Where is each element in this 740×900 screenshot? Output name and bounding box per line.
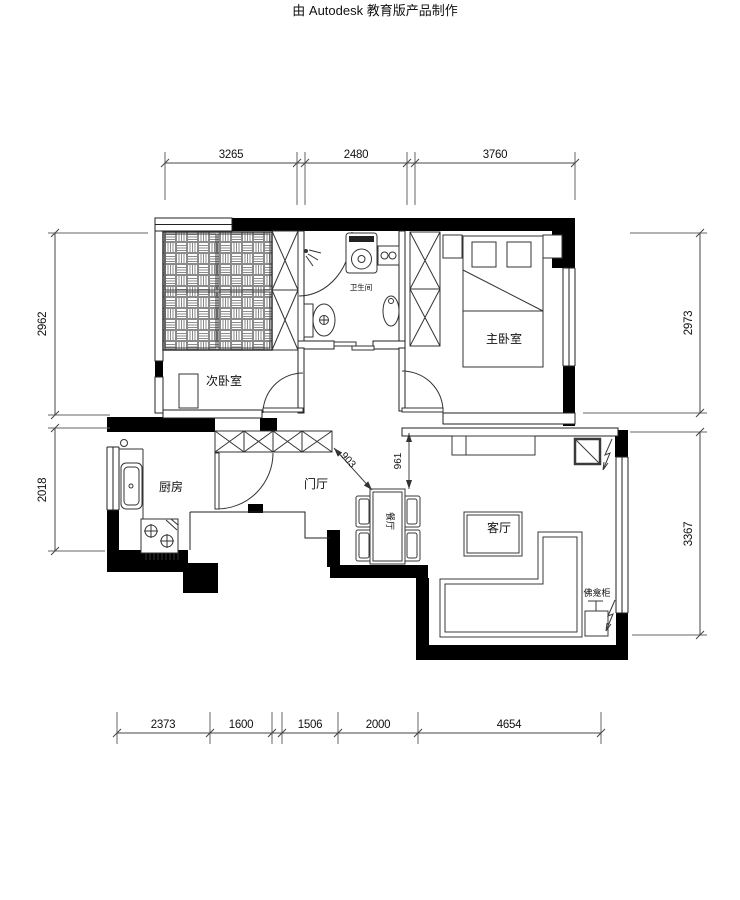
pillow-left bbox=[472, 242, 496, 267]
dim-top-1: 3265 bbox=[219, 149, 243, 161]
room-label-bathroom: 卫生间 bbox=[350, 282, 373, 292]
room-label-master-bedroom: 主卧室 bbox=[486, 331, 522, 346]
dim-left-2: 2018 bbox=[37, 478, 49, 502]
wall-kitchen-top bbox=[107, 417, 215, 432]
room-label-living: 客厅 bbox=[487, 520, 511, 535]
wall-hall-block bbox=[260, 418, 277, 432]
wall-corridor-right bbox=[399, 348, 405, 411]
room-label-entry-hall: 门厅 bbox=[304, 476, 328, 491]
bathroom-sink bbox=[383, 296, 399, 326]
dining-chair bbox=[404, 530, 420, 561]
dim-leader-903 bbox=[334, 448, 372, 490]
lightning-symbol-top bbox=[603, 439, 612, 470]
dim-top-3: 3760 bbox=[483, 149, 507, 161]
master-bedroom bbox=[443, 235, 562, 367]
room-label-secondary-bedroom: 次卧室 bbox=[206, 373, 242, 388]
wall-dining-bottom bbox=[330, 565, 428, 578]
room-label-dining: 餐厅 bbox=[385, 512, 396, 530]
dim-bottom-3: 1506 bbox=[298, 719, 322, 731]
wall-living-bottom bbox=[416, 645, 628, 660]
label-shrine-cabinet: 佛龛柜 bbox=[583, 587, 610, 598]
bath-cabinet bbox=[378, 246, 399, 265]
shower-screen bbox=[299, 232, 352, 296]
wall-dining-notch bbox=[327, 530, 340, 567]
wardrobe-bedroom2 bbox=[272, 231, 298, 350]
window-master-bedroom bbox=[563, 268, 575, 366]
dim-right-1: 2973 bbox=[683, 311, 695, 335]
wall-left-block bbox=[155, 360, 163, 377]
dim-interior-903: 903 bbox=[338, 450, 358, 470]
floor-plan-page: 由 Autodesk 教育版产品制作 bbox=[0, 0, 740, 900]
dim-bottom-1: 2373 bbox=[151, 719, 175, 731]
wall-top bbox=[232, 218, 552, 231]
dim-interior-961: 961 bbox=[393, 452, 404, 469]
dim-right-2: 3367 bbox=[683, 522, 695, 546]
washing-machine bbox=[346, 233, 377, 273]
shrine-cabinet bbox=[585, 601, 608, 636]
shower-head-icon bbox=[305, 250, 322, 267]
window-kitchen bbox=[107, 447, 119, 510]
wall-living-left bbox=[416, 578, 429, 648]
dim-bottom-5: 4654 bbox=[497, 719, 522, 731]
room-label-kitchen: 厨房 bbox=[159, 479, 183, 494]
kitchen-pipe bbox=[121, 440, 128, 447]
wall-bedroom2-bottom bbox=[163, 410, 262, 418]
kitchen-sink bbox=[121, 463, 142, 509]
ac-unit bbox=[575, 439, 600, 464]
kitchen-step-outline bbox=[190, 512, 330, 550]
wall-living-top bbox=[402, 428, 618, 436]
dim-bottom-2: 1600 bbox=[229, 719, 253, 731]
nightstand-right bbox=[543, 235, 562, 258]
wall-corridor-left bbox=[298, 348, 304, 413]
door-master-bedroom bbox=[402, 371, 443, 412]
window-living-room bbox=[616, 457, 628, 613]
wall-bath-left bbox=[298, 231, 304, 348]
wall-living-right-corner bbox=[616, 613, 628, 660]
toilet bbox=[304, 304, 335, 337]
dimensions-bottom bbox=[113, 712, 605, 744]
pillow-right bbox=[507, 242, 531, 267]
door-kitchen bbox=[215, 453, 273, 509]
door-bedroom2 bbox=[263, 373, 303, 413]
floor-plan-canvas: 由 Autodesk 教育版产品制作 bbox=[0, 0, 740, 900]
nightstand-left bbox=[443, 235, 462, 258]
wardrobe-master-bedroom bbox=[410, 232, 440, 346]
shoe-cabinet-row bbox=[215, 431, 332, 452]
nightstand-bedroom2 bbox=[179, 374, 198, 408]
tv-cabinet bbox=[452, 436, 535, 455]
living-room bbox=[440, 436, 615, 637]
wall-left-lowerseg bbox=[155, 377, 163, 413]
dining-chair bbox=[404, 496, 420, 527]
bathroom-sliding-door bbox=[334, 342, 374, 350]
watermark: 由 Autodesk 教育版产品制作 bbox=[292, 3, 457, 18]
dim-top-2: 2480 bbox=[344, 149, 368, 161]
wall-master-bottom bbox=[443, 413, 575, 424]
wall-kitchen-step bbox=[183, 563, 218, 593]
dim-left-1: 2962 bbox=[37, 312, 49, 336]
dim-bottom-4: 2000 bbox=[366, 719, 390, 731]
wall-bath-right bbox=[399, 231, 405, 348]
wall-left-upper bbox=[155, 231, 163, 361]
kitchen bbox=[119, 440, 178, 561]
